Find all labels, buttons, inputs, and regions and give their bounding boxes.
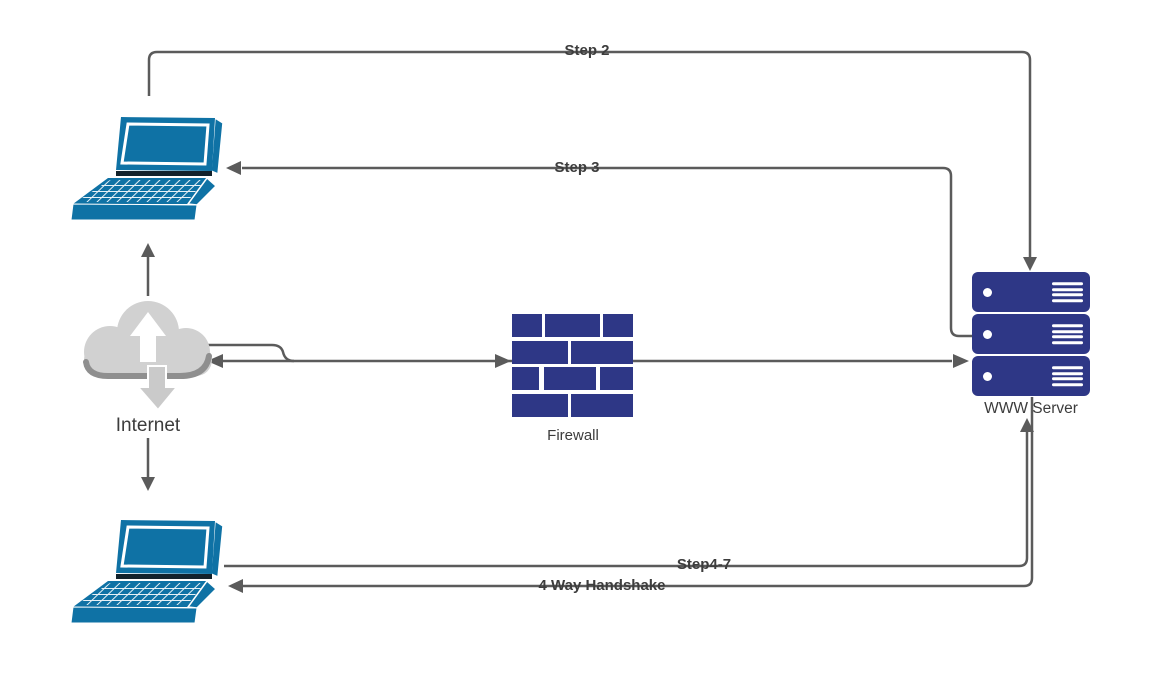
arrowhead-down [141,477,155,491]
laptop-hinge [116,171,212,176]
step4-7-label: Step4-7 [677,557,731,574]
server-unit [972,356,1090,396]
server-vents-icon [1052,282,1083,302]
arrowhead-up [141,243,155,257]
step3-label: Step 3 [554,160,599,177]
internet-label: Internet [116,416,180,437]
server-led [983,372,992,381]
laptop-hinge [116,574,212,579]
brick-row [512,341,633,364]
server-vents-icon [1052,324,1083,344]
brick-row [512,394,633,417]
laptop-front [71,607,197,623]
connector-internet-downlink [141,438,155,491]
arrowhead-left [228,579,243,593]
connector-step4-7 [224,418,1034,566]
laptop-front [71,204,197,220]
arrowhead-down [1023,257,1037,271]
laptop-icon [70,493,230,628]
server-unit [972,314,1090,354]
arrowhead-right-firewall [495,354,511,368]
handshake-label: 4 Way Handshake [539,578,666,595]
server-unit [972,272,1090,312]
connector-handshake [228,397,1032,593]
laptop-icon [70,90,230,225]
brick-row [512,314,633,337]
diagram-canvas: Internet Firewall WWW Se [0,0,1163,695]
brick-wall-icon [512,314,633,417]
step2-label: Step 2 [564,43,609,60]
brick-row [512,367,633,390]
server-led [983,330,992,339]
connector-step3 [226,161,972,336]
firewall-label: Firewall [547,428,599,445]
www-server-label: WWW Server [984,400,1078,417]
server-led [983,288,992,297]
arrowhead-right-server [953,354,969,368]
cloud-up-down-arrows-icon [78,288,228,423]
server-vents-icon [1052,366,1083,386]
